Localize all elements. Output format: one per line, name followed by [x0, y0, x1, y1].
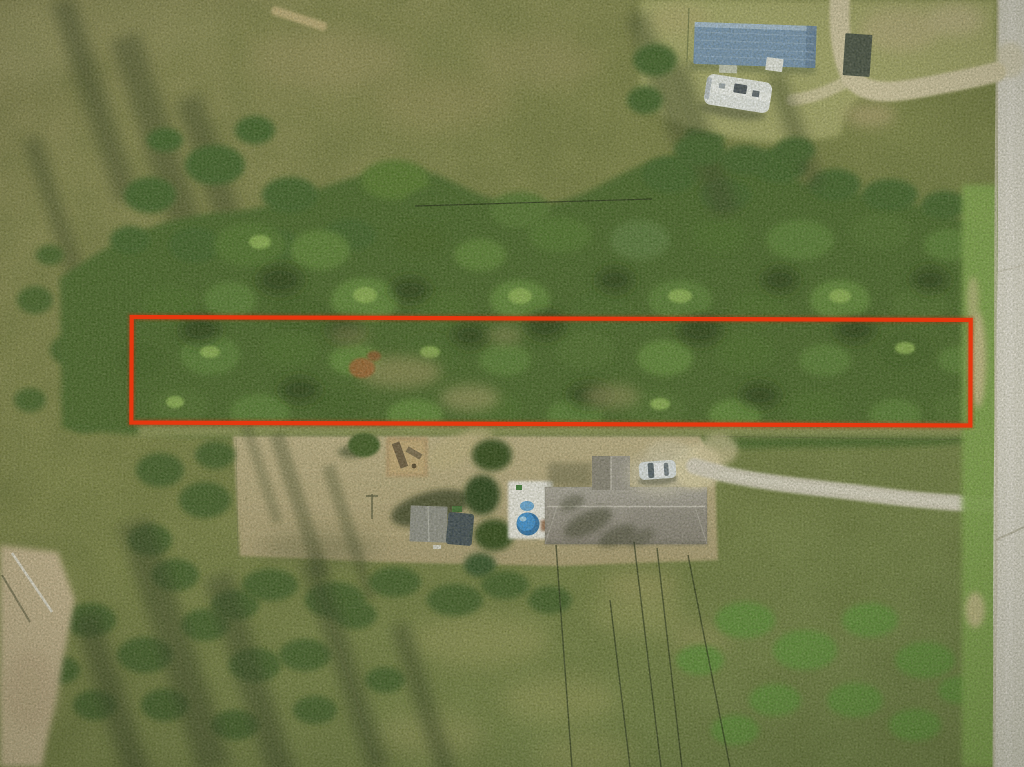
aerial-scene — [0, 0, 1024, 767]
aerial-photo — [0, 0, 1024, 767]
vignette — [0, 0, 1024, 767]
